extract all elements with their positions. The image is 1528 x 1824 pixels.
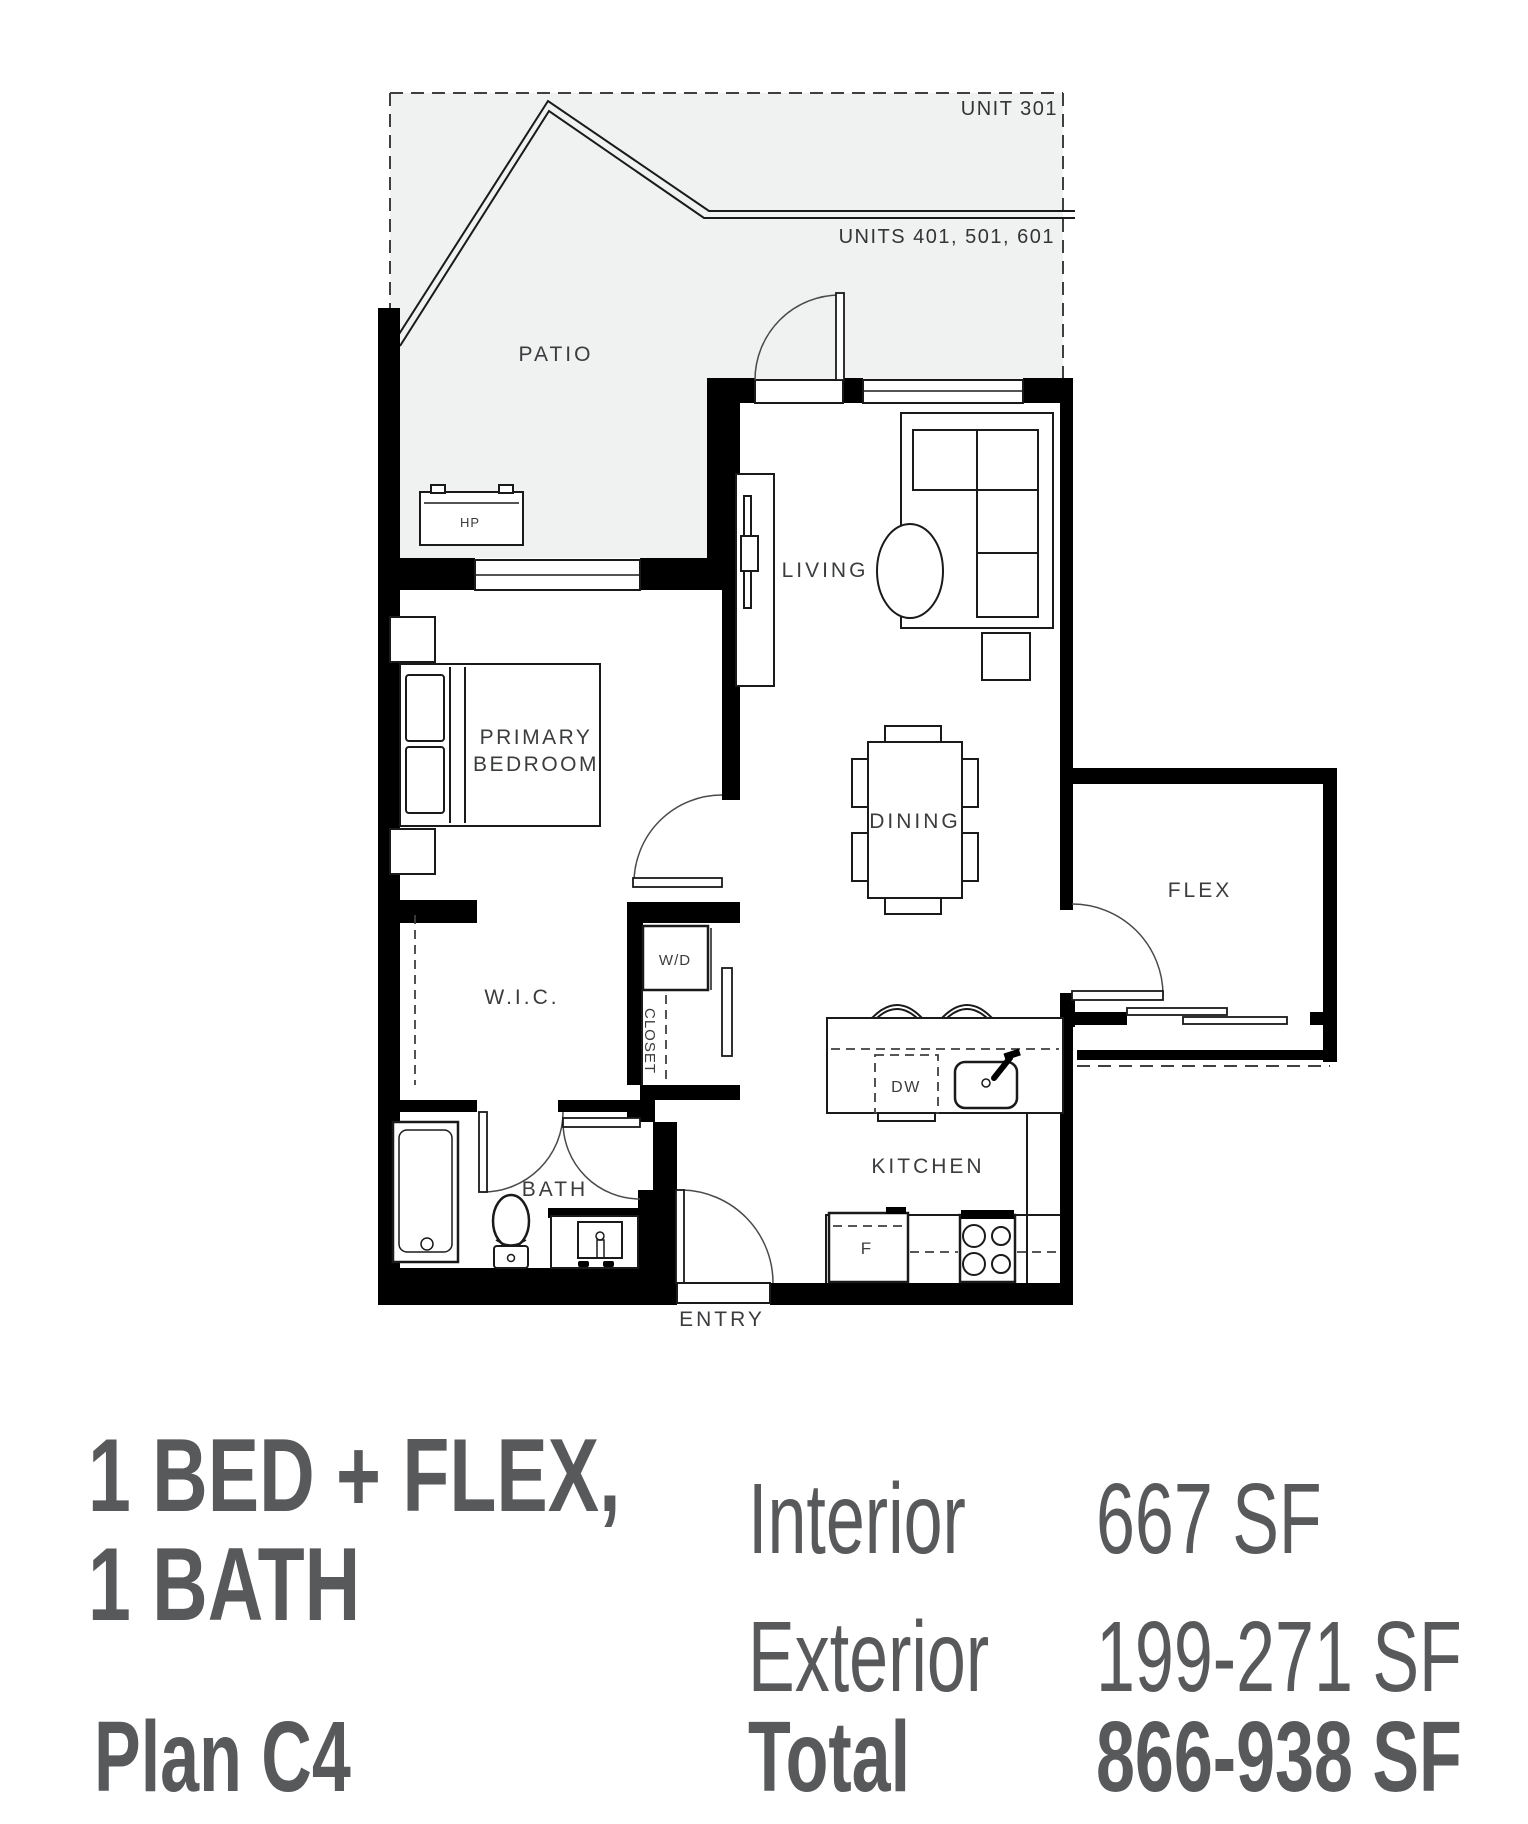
fridge-label: F <box>861 1239 871 1258</box>
units-401-501-601-label: UNITS 401, 501, 601 <box>839 226 1055 248</box>
sofa <box>877 413 1053 680</box>
laundry-closet <box>415 915 711 1085</box>
washer-dryer-label: W/D <box>659 952 691 969</box>
bath-label: BATH <box>522 1178 588 1201</box>
total-label: Total <box>748 1700 910 1815</box>
interior-label: Interior <box>748 1462 966 1577</box>
kitchen-label: KITCHEN <box>871 1155 984 1178</box>
entry-label: ENTRY <box>679 1308 765 1331</box>
primary-bedroom-label-line1: PRIMARY <box>480 726 593 749</box>
patio-label: PATIO <box>519 343 594 366</box>
total-value: 866-938 SF <box>1096 1700 1462 1815</box>
tv-console <box>736 474 774 686</box>
exterior-label: Exterior <box>748 1600 989 1715</box>
plan-code: Plan C4 <box>94 1700 351 1815</box>
wic-label: W.I.C. <box>484 986 559 1009</box>
floorplan-page: UNIT 301 UNITS 401, 501, 601 PATIO LIVIN… <box>0 0 1528 1824</box>
dishwasher-label: DW <box>891 1079 921 1096</box>
unit-301-label: UNIT 301 <box>961 98 1058 120</box>
plan-title-line1: 1 BED + FLEX, <box>88 1422 620 1531</box>
flex-label: FLEX <box>1168 879 1233 902</box>
plan-title-line2: 1 BATH <box>88 1531 620 1640</box>
heat-pump-label: HP <box>460 515 480 530</box>
closet-label: CLOSET <box>641 1008 658 1074</box>
living-label: LIVING <box>782 559 869 582</box>
plan-title: 1 BED + FLEX, 1 BATH <box>88 1422 620 1640</box>
interior-value: 667 SF <box>1096 1462 1322 1577</box>
primary-bedroom-label-line2: BEDROOM <box>473 753 599 776</box>
bath-fixtures <box>393 1122 638 1268</box>
exterior-value: 199-271 SF <box>1096 1600 1462 1715</box>
dining-label: DINING <box>869 810 961 833</box>
